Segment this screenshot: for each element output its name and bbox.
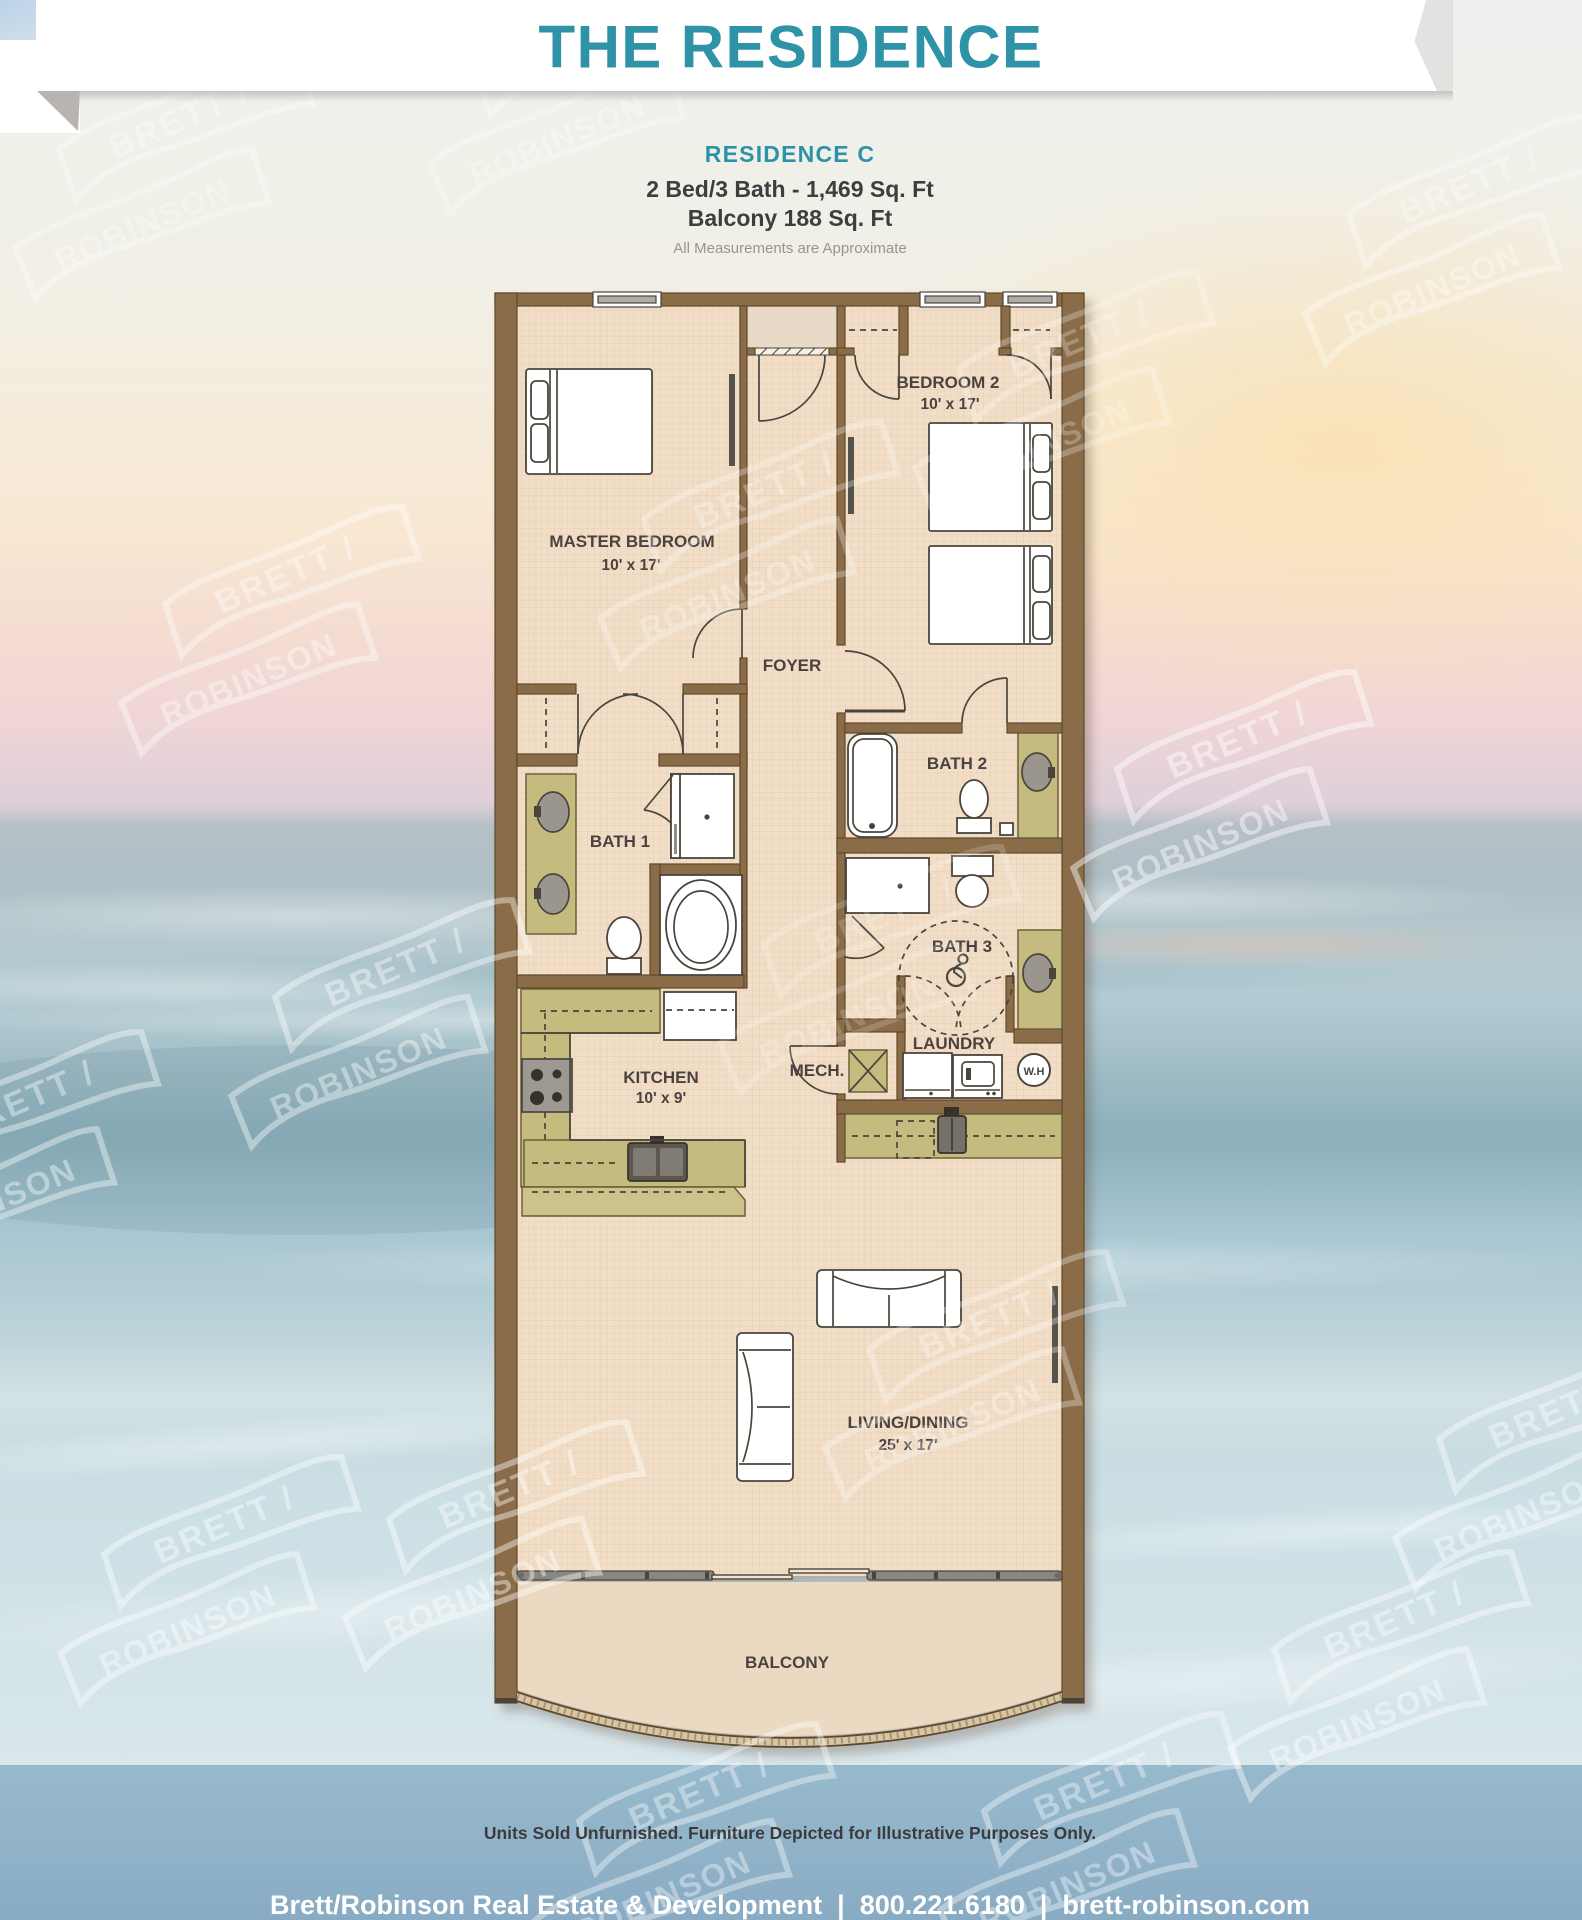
svg-text:All Measurements are Approxima: All Measurements are Approximate — [673, 240, 906, 257]
svg-text:Brett/Robinson Real Estate & D: Brett/Robinson Real Estate & Development… — [270, 1890, 1310, 1920]
svg-text:BEDROOM 2: BEDROOM 2 — [897, 373, 1000, 392]
svg-text:BATH 2: BATH 2 — [927, 754, 987, 773]
svg-text:RESIDENCE C: RESIDENCE C — [705, 141, 875, 167]
svg-text:BATH 1: BATH 1 — [590, 832, 650, 851]
svg-text:10' x 9': 10' x 9' — [636, 1090, 686, 1107]
svg-text:Balcony 188 Sq. Ft: Balcony 188 Sq. Ft — [688, 205, 893, 231]
svg-text:10' x 17': 10' x 17' — [601, 557, 660, 574]
svg-text:THE RESIDENCE: THE RESIDENCE — [539, 14, 1044, 81]
svg-text:KITCHEN: KITCHEN — [623, 1068, 699, 1087]
svg-text:LAUNDRY: LAUNDRY — [913, 1034, 996, 1053]
svg-text:W.H: W.H — [1024, 1066, 1045, 1078]
svg-text:2 Bed/3 Bath - 1,469 Sq. Ft: 2 Bed/3 Bath - 1,469 Sq. Ft — [646, 176, 934, 202]
svg-text:Units Sold Unfurnished. Furnit: Units Sold Unfurnished. Furniture Depict… — [484, 1823, 1096, 1843]
svg-text:MECH.: MECH. — [790, 1061, 845, 1080]
svg-text:BALCONY: BALCONY — [745, 1653, 830, 1672]
svg-text:FOYER: FOYER — [763, 656, 822, 675]
